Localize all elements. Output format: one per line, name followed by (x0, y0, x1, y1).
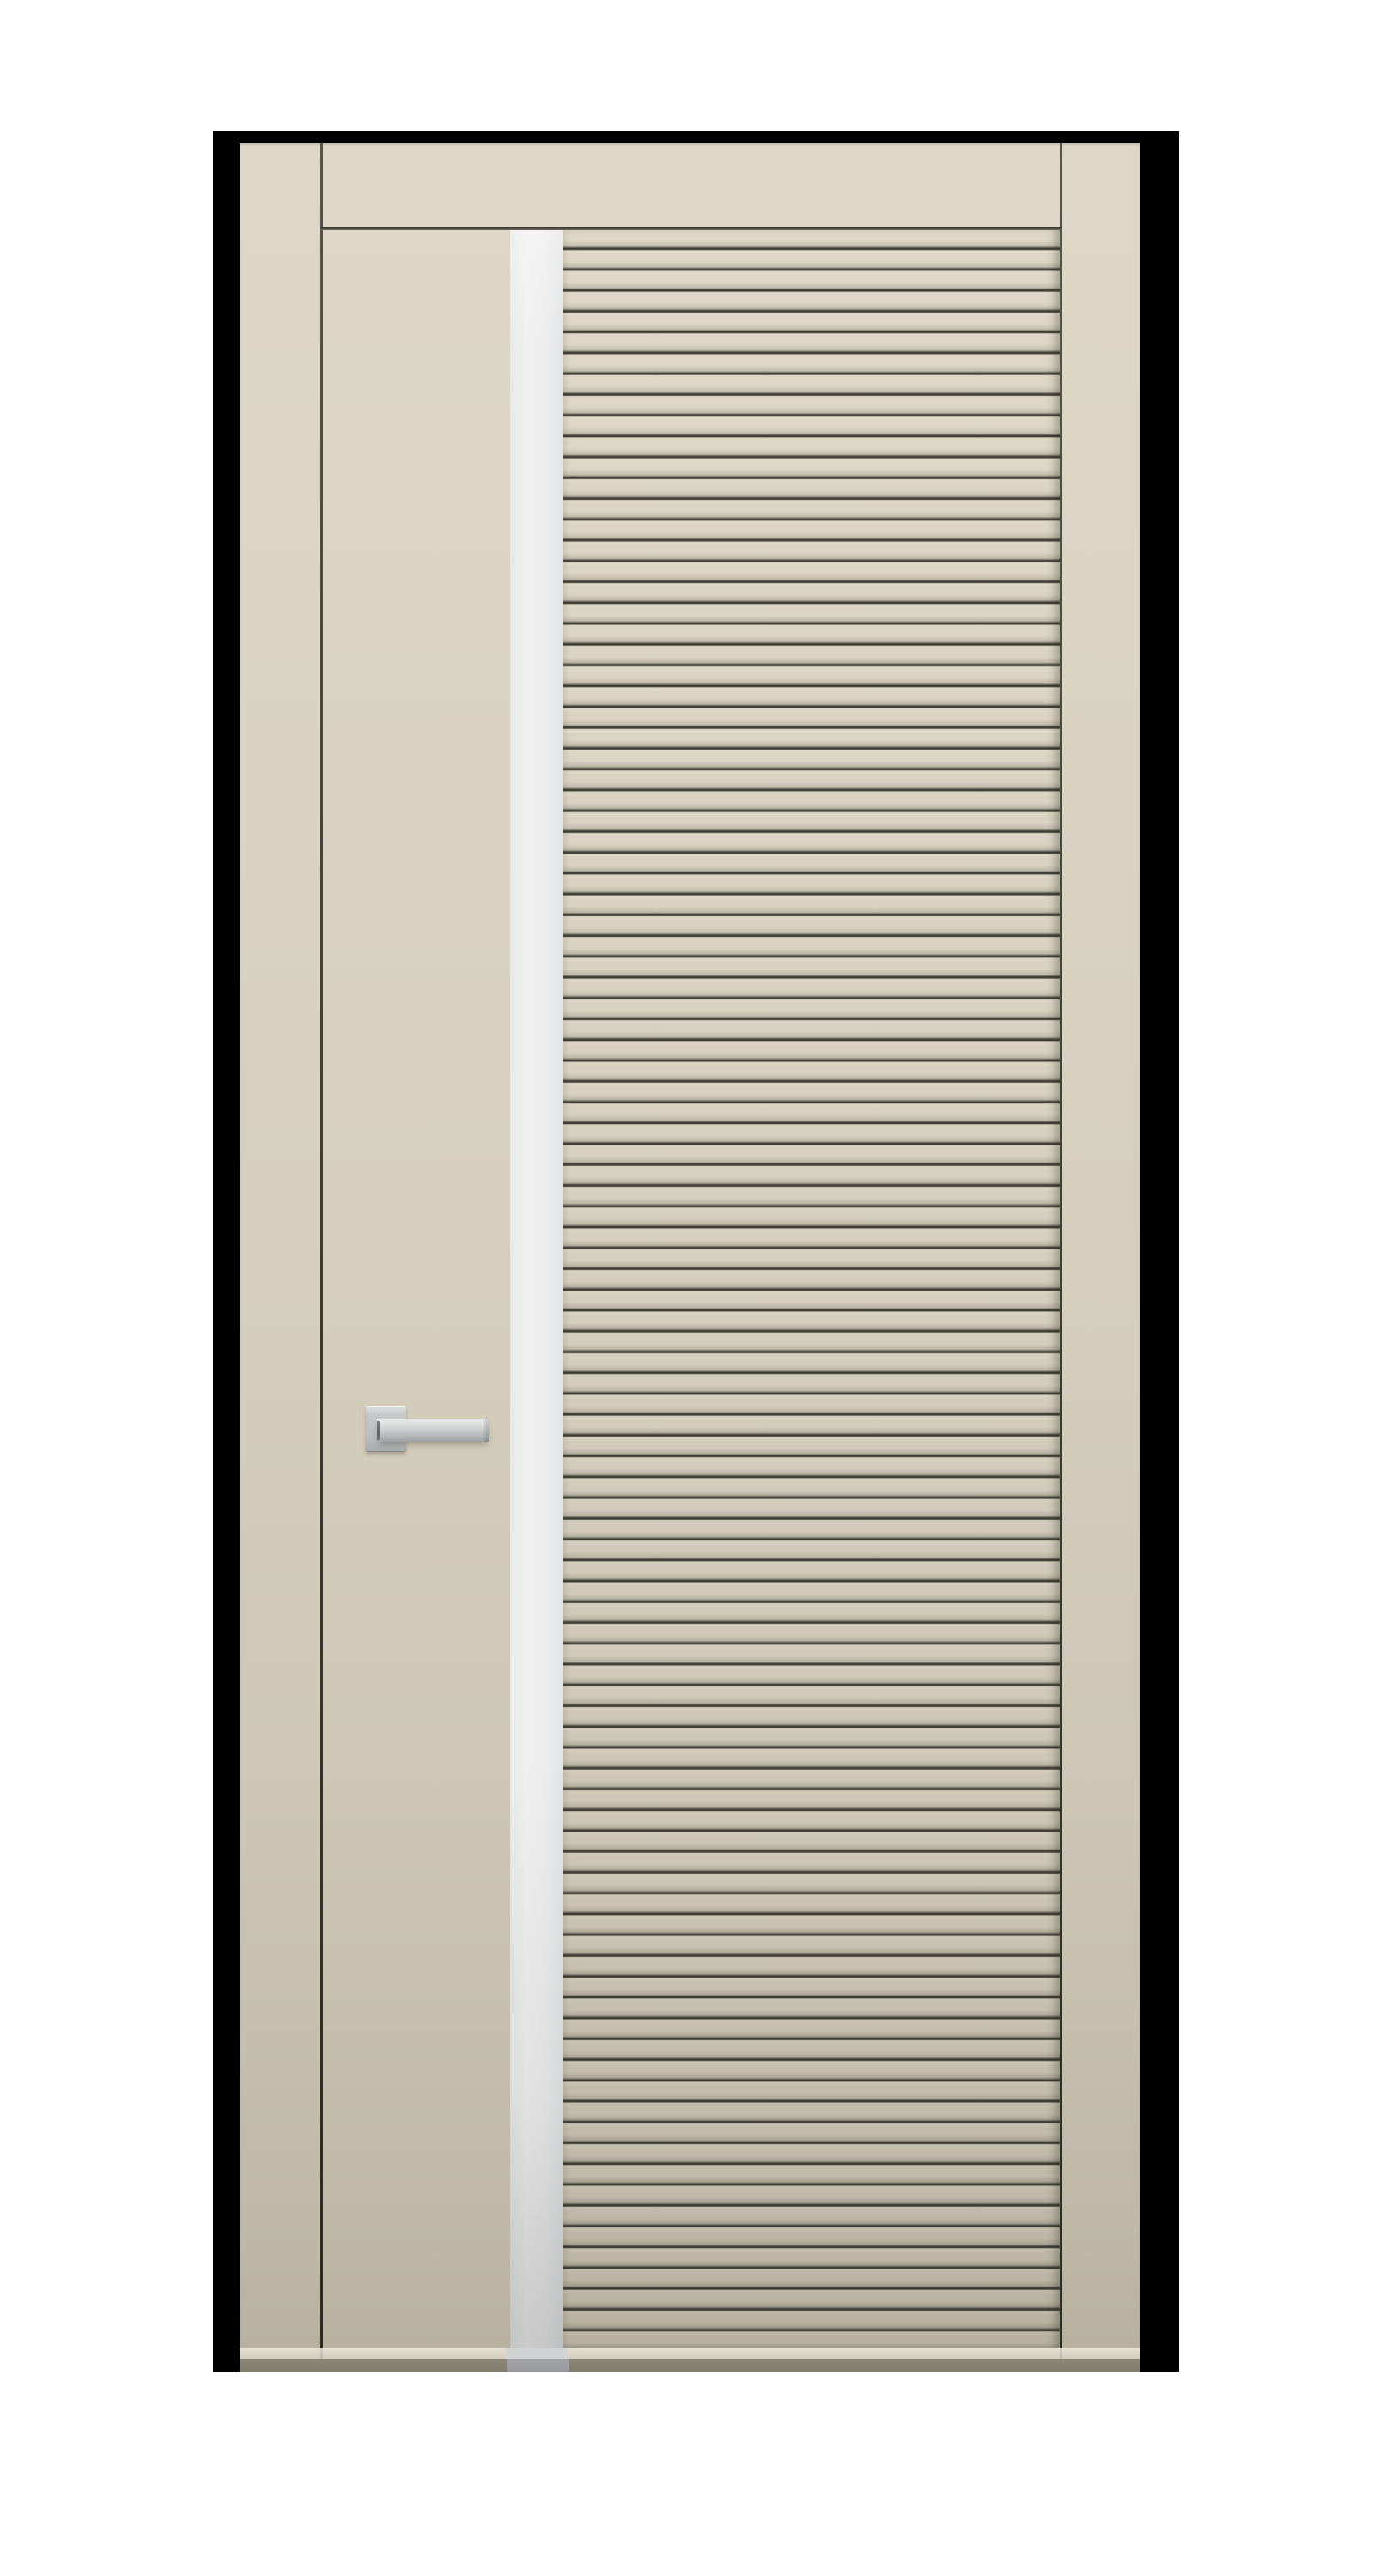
left-frame-gap-line (320, 143, 323, 2363)
floor-shadow (240, 2359, 1140, 2372)
handle-lever (377, 1419, 489, 1442)
product-image (0, 0, 1391, 2576)
door-bottom-edge (240, 2348, 1140, 2359)
door-assembly (240, 143, 1140, 2359)
glass-insert (510, 230, 563, 2348)
glass-bottom-cap (506, 2348, 568, 2359)
right-frame-gap-line (1060, 143, 1062, 2363)
glass-bottom-reflection (507, 2359, 569, 2372)
ribbed-slat-panel (563, 230, 1060, 2348)
